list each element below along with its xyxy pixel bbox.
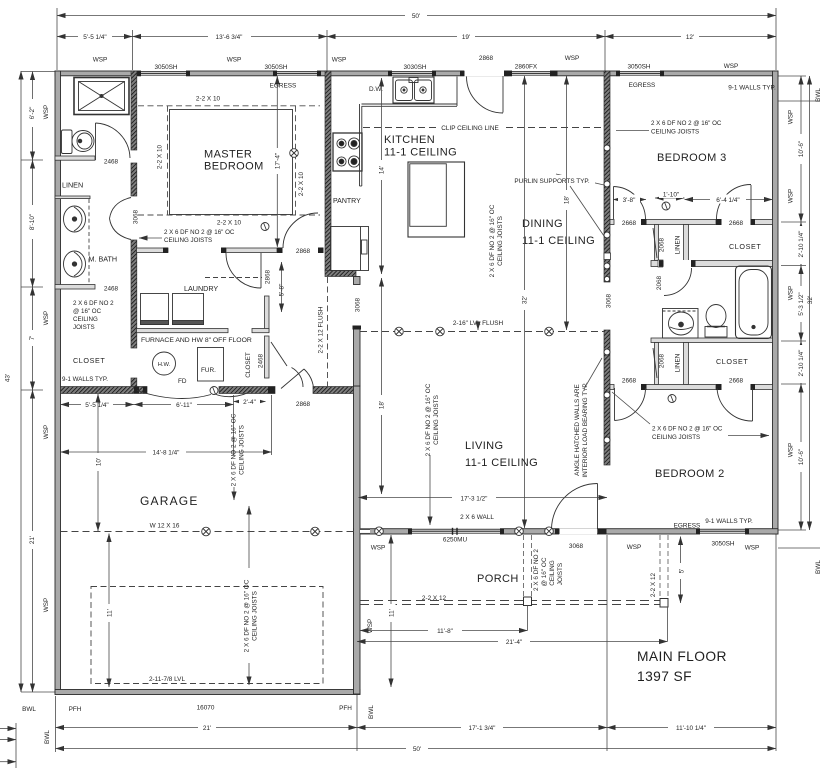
svg-text:BWL: BWL [22, 706, 36, 713]
svg-text:CLOSET: CLOSET [729, 242, 761, 251]
svg-text:LINEN: LINEN [62, 181, 83, 190]
svg-text:CEILING JOISTS: CEILING JOISTS [497, 216, 504, 266]
svg-text:5': 5' [679, 569, 686, 574]
svg-text:PFH: PFH [339, 705, 352, 712]
svg-text:CLIP CEILING LINE: CLIP CEILING LINE [441, 125, 498, 132]
svg-text:3030SH: 3030SH [403, 64, 426, 71]
svg-text:BWL: BWL [44, 730, 51, 744]
svg-text:CEILING JOISTS: CEILING JOISTS [252, 591, 259, 641]
svg-text:3050SH: 3050SH [711, 541, 734, 548]
svg-text:WSP: WSP [93, 57, 108, 64]
svg-text:2468: 2468 [104, 159, 119, 166]
svg-text:PANTRY: PANTRY [333, 198, 361, 205]
svg-text:2068: 2068 [659, 237, 666, 252]
svg-text:2868: 2868 [479, 55, 494, 62]
svg-text:3068: 3068 [606, 293, 613, 308]
svg-text:13'-6 3/4": 13'-6 3/4" [216, 34, 243, 41]
svg-text:DINING: DINING [522, 218, 563, 230]
svg-text:1'-10": 1'-10" [663, 192, 679, 199]
svg-text:6'-2": 6'-2" [29, 107, 36, 120]
svg-text:11': 11' [107, 609, 114, 617]
svg-text:INTERIOR LOAD BEARING TYP.: INTERIOR LOAD BEARING TYP. [582, 382, 589, 478]
svg-text:3068: 3068 [133, 209, 140, 224]
svg-text:BWL: BWL [815, 88, 822, 102]
svg-text:CEILING JOISTS: CEILING JOISTS [652, 434, 700, 441]
svg-text:21'-4": 21'-4" [506, 639, 522, 646]
svg-text:WSP: WSP [627, 544, 642, 551]
svg-text:EGRESS: EGRESS [629, 82, 656, 89]
svg-text:2668: 2668 [729, 378, 744, 385]
svg-text:5'-3 1/2": 5'-3 1/2" [798, 292, 805, 315]
svg-text:WSP: WSP [367, 619, 374, 634]
svg-text:3068: 3068 [355, 297, 362, 312]
svg-text:BEDROOM 2: BEDROOM 2 [655, 468, 725, 480]
svg-text:D.W.: D.W. [369, 86, 383, 93]
svg-text:2868: 2868 [296, 401, 311, 408]
svg-text:WSP: WSP [788, 286, 795, 301]
svg-text:JOISTS: JOISTS [557, 563, 564, 585]
svg-text:WSP: WSP [788, 189, 795, 204]
svg-text:3050SH: 3050SH [627, 64, 650, 71]
svg-text:2868: 2868 [296, 248, 311, 255]
svg-text:10'-6": 10'-6" [798, 449, 805, 465]
svg-text:PFH: PFH [69, 706, 82, 713]
svg-text:43': 43' [5, 374, 12, 382]
svg-text:2668: 2668 [729, 220, 744, 227]
svg-text:3'-8": 3'-8" [623, 197, 636, 204]
svg-text:CLOSET: CLOSET [716, 357, 748, 366]
svg-text:18': 18' [564, 196, 571, 204]
svg-text:ANGLE HATCHED WALLS ARE: ANGLE HATCHED WALLS ARE [574, 384, 581, 476]
svg-text:CEILING JOISTS: CEILING JOISTS [651, 129, 699, 136]
svg-text:WSP: WSP [371, 545, 386, 552]
svg-text:3050SH: 3050SH [264, 64, 287, 71]
svg-text:19': 19' [462, 34, 470, 41]
svg-text:WSP: WSP [227, 57, 242, 64]
svg-text:17'-3 1/2": 17'-3 1/2" [461, 496, 488, 503]
svg-text:2-2 X 10: 2-2 X 10 [217, 220, 242, 227]
svg-text:JOISTS: JOISTS [73, 324, 95, 331]
svg-text:9-1 WALLS TYP.: 9-1 WALLS TYP. [62, 376, 108, 383]
svg-text:WSP: WSP [565, 55, 580, 62]
svg-text:11'-8": 11'-8" [437, 628, 453, 635]
svg-text:EGRESS: EGRESS [270, 83, 297, 90]
svg-text:5'-8": 5'-8" [279, 284, 286, 297]
svg-text:WSP: WSP [332, 57, 347, 64]
svg-text:2-2 X 12 FLUSH: 2-2 X 12 FLUSH [318, 306, 325, 353]
svg-text:MAIN FLOOR: MAIN FLOOR [637, 649, 727, 664]
svg-text:11'-10 1/4": 11'-10 1/4" [676, 725, 706, 732]
svg-text:11-1 CEILING: 11-1 CEILING [465, 457, 538, 469]
svg-text:PURLIN SUPPORTS TYP.: PURLIN SUPPORTS TYP. [514, 178, 590, 185]
svg-text:5'-5 1/4": 5'-5 1/4" [85, 402, 108, 409]
svg-text:14'-8 1/4": 14'-8 1/4" [153, 450, 180, 457]
svg-text:10': 10' [96, 458, 103, 466]
svg-text:7': 7' [29, 336, 36, 341]
svg-text:2'-4": 2'-4" [243, 399, 256, 406]
svg-text:WSP: WSP [43, 105, 50, 120]
svg-text:LIVING: LIVING [465, 440, 503, 452]
svg-text:WSP: WSP [788, 110, 795, 125]
svg-text:CEILING JOISTS: CEILING JOISTS [164, 237, 212, 244]
svg-text:2 X 6 DF NO 2 @ 16" OC: 2 X 6 DF NO 2 @ 16" OC [652, 426, 723, 433]
svg-text:2068: 2068 [659, 353, 666, 368]
svg-text:12': 12' [686, 34, 694, 41]
svg-text:CEILING: CEILING [549, 560, 556, 586]
svg-text:2-11-7/8 LVL: 2-11-7/8 LVL [149, 676, 185, 683]
svg-text:H.W.: H.W. [158, 362, 171, 368]
svg-text:M. BATH: M. BATH [89, 255, 118, 264]
svg-text:17'-4": 17'-4" [275, 153, 282, 169]
svg-text:2'-10 1/4": 2'-10 1/4" [798, 350, 805, 377]
svg-text:2068: 2068 [656, 275, 663, 290]
svg-text:1397 SF: 1397 SF [637, 669, 692, 684]
svg-text:BWL: BWL [815, 560, 822, 574]
svg-text:2-2 X 10: 2-2 X 10 [157, 144, 164, 169]
svg-text:50': 50' [413, 746, 421, 753]
svg-text:2 X 6 DF NO 2 @ 16" OC: 2 X 6 DF NO 2 @ 16" OC [489, 204, 496, 277]
svg-text:2860FX: 2860FX [515, 64, 538, 71]
svg-text:2 X 6 DF NO 2 @ 16" OC: 2 X 6 DF NO 2 @ 16" OC [231, 413, 238, 486]
svg-text:2-16" LVL FLUSH: 2-16" LVL FLUSH [453, 320, 504, 327]
svg-text:2468: 2468 [104, 286, 119, 293]
svg-text:CEILING JOISTS: CEILING JOISTS [433, 395, 440, 445]
svg-text:2 X 6 DF NO 2 @ 16" OC: 2 X 6 DF NO 2 @ 16" OC [164, 229, 235, 236]
svg-text:2 X 6 DF NO 2: 2 X 6 DF NO 2 [533, 549, 540, 591]
svg-text:EGRESS: EGRESS [674, 523, 701, 530]
svg-text:2 X 6 WALL: 2 X 6 WALL [460, 514, 494, 521]
svg-text:LINEN: LINEN [675, 353, 682, 372]
svg-text:CLOSET: CLOSET [73, 356, 105, 365]
svg-text:WSP: WSP [43, 311, 50, 326]
svg-text:21': 21' [29, 536, 36, 544]
svg-text:BWL: BWL [368, 705, 375, 719]
svg-text:6'-11": 6'-11" [176, 402, 192, 409]
svg-text:MASTER: MASTER [204, 149, 252, 161]
svg-text:6'-4 1/4": 6'-4 1/4" [716, 197, 739, 204]
svg-text:2468: 2468 [258, 353, 265, 368]
svg-text:2868: 2868 [265, 269, 272, 284]
svg-text:50': 50' [412, 13, 420, 20]
svg-text:17'-1 3/4": 17'-1 3/4" [469, 725, 496, 732]
svg-text:21': 21' [203, 725, 211, 732]
svg-text:2668: 2668 [622, 220, 637, 227]
svg-text:2 X 6 DF NO 2 @ 16" OC: 2 X 6 DF NO 2 @ 16" OC [425, 383, 432, 456]
svg-text:9-1 WALLS TYP.: 9-1 WALLS TYP. [728, 85, 776, 92]
svg-text:FURNACE AND HW 8" OFF FLOOR: FURNACE AND HW 8" OFF FLOOR [141, 337, 252, 344]
svg-text:3068: 3068 [569, 543, 584, 550]
svg-text:10'-6": 10'-6" [798, 141, 805, 157]
svg-text:2'-10 1/4": 2'-10 1/4" [798, 231, 805, 258]
svg-text:WSP: WSP [43, 598, 50, 613]
svg-text:PORCH: PORCH [477, 573, 519, 585]
svg-text:18': 18' [379, 401, 386, 409]
svg-text:BEDROOM: BEDROOM [204, 161, 264, 173]
svg-text:@ 16" OC: @ 16" OC [73, 308, 102, 315]
svg-text:WSP: WSP [724, 63, 739, 70]
svg-text:2668: 2668 [622, 378, 637, 385]
svg-text:WSP: WSP [745, 545, 760, 552]
svg-text:FD: FD [178, 378, 187, 385]
svg-text:3050SH: 3050SH [154, 64, 177, 71]
svg-text:GARAGE: GARAGE [140, 494, 199, 508]
svg-text:9-1 WALLS TYP.: 9-1 WALLS TYP. [705, 518, 753, 525]
svg-text:32': 32' [522, 296, 529, 304]
svg-text:2-2 X 12: 2-2 X 12 [650, 572, 657, 597]
svg-text:2 X 6 DF NO 2: 2 X 6 DF NO 2 [73, 300, 114, 307]
svg-text:WSP: WSP [43, 425, 50, 440]
svg-text:5'-5 1/4": 5'-5 1/4" [83, 34, 106, 41]
svg-text:16070: 16070 [197, 705, 215, 712]
svg-text:11-1 CEILING: 11-1 CEILING [384, 147, 457, 159]
svg-text:6250MU: 6250MU [443, 537, 468, 544]
svg-text:14': 14' [379, 166, 386, 174]
svg-text:KITCHEN: KITCHEN [384, 134, 435, 146]
svg-text:LINEN: LINEN [675, 235, 682, 254]
svg-text:W 12 X 16: W 12 X 16 [150, 523, 180, 530]
svg-text:CEILING JOISTS: CEILING JOISTS [239, 425, 246, 475]
svg-text:2-2 X 10: 2-2 X 10 [196, 96, 221, 103]
svg-text:2 X 6 DF NO 2 @ 16" OC: 2 X 6 DF NO 2 @ 16" OC [244, 579, 251, 652]
svg-text:@ 16" OC: @ 16" OC [541, 557, 548, 586]
svg-text:11-1 CEILING: 11-1 CEILING [522, 235, 595, 247]
svg-text:2-2 X 10: 2-2 X 10 [298, 171, 305, 196]
svg-text:CEILING: CEILING [73, 316, 98, 323]
svg-text:BEDROOM 3: BEDROOM 3 [657, 152, 727, 164]
svg-text:LAUNDRY: LAUNDRY [184, 284, 218, 293]
svg-text:8'-10": 8'-10" [29, 214, 36, 230]
svg-text:WSP: WSP [788, 443, 795, 458]
svg-text:2 X 6 DF NO 2 @ 16" OC: 2 X 6 DF NO 2 @ 16" OC [651, 120, 722, 127]
svg-text:FUR.: FUR. [201, 367, 216, 374]
svg-text:CLOSET: CLOSET [245, 352, 252, 378]
svg-text:11': 11' [389, 609, 396, 617]
svg-text:32': 32' [807, 296, 814, 304]
